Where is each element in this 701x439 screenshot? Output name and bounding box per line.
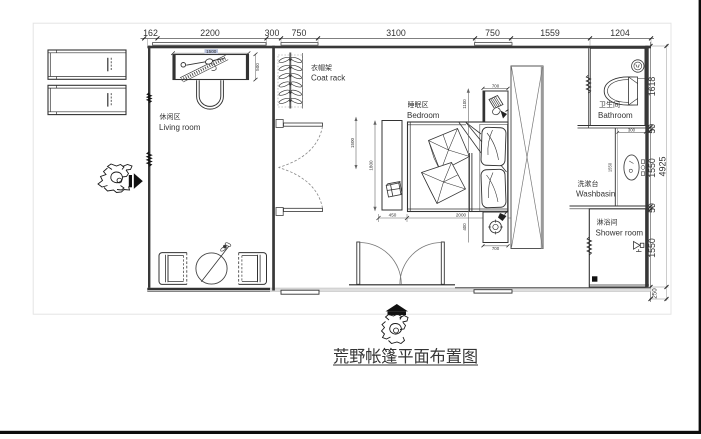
- svg-text:1204: 1204: [610, 28, 630, 38]
- svg-text:1500: 1500: [206, 49, 217, 54]
- svg-text:1550: 1550: [608, 162, 613, 172]
- svg-text:500: 500: [255, 63, 260, 71]
- svg-text:300: 300: [265, 28, 280, 38]
- svg-text:250: 250: [652, 288, 659, 299]
- svg-text:Living room: Living room: [159, 123, 201, 132]
- svg-text:衣帽架: 衣帽架: [311, 63, 332, 73]
- svg-text:淋浴间: 淋浴间: [597, 218, 618, 228]
- svg-text:3100: 3100: [386, 28, 406, 38]
- svg-text:1559: 1559: [540, 28, 560, 38]
- svg-text:1100: 1100: [462, 99, 467, 109]
- svg-text:450: 450: [389, 213, 397, 218]
- svg-text:400: 400: [462, 223, 467, 231]
- svg-text:Coat rack: Coat rack: [311, 74, 346, 83]
- svg-text:162: 162: [143, 28, 158, 38]
- svg-text:750: 750: [485, 28, 500, 38]
- svg-text:Bathroom: Bathroom: [598, 111, 633, 120]
- svg-text:750: 750: [292, 28, 307, 38]
- svg-text:1500: 1500: [350, 137, 355, 148]
- svg-text:睡眠区: 睡眠区: [408, 100, 429, 110]
- svg-text:700: 700: [492, 83, 500, 88]
- svg-text:荒野帐篷平面布置图: 荒野帐篷平面布置图: [333, 343, 478, 367]
- svg-text:700: 700: [492, 246, 500, 251]
- svg-text:Bedroom: Bedroom: [407, 111, 440, 120]
- svg-text:Washbasin: Washbasin: [576, 190, 615, 199]
- svg-text:洗漱台: 洗漱台: [578, 179, 599, 189]
- svg-text:Shower room: Shower room: [596, 229, 644, 238]
- svg-text:休闲区: 休闲区: [160, 112, 181, 122]
- svg-text:2000: 2000: [456, 213, 467, 218]
- svg-text:4925: 4925: [658, 156, 668, 176]
- svg-text:卫生间: 卫生间: [599, 100, 620, 110]
- svg-text:2200: 2200: [200, 28, 220, 38]
- svg-text:300: 300: [628, 127, 636, 132]
- svg-text:1800: 1800: [369, 160, 374, 171]
